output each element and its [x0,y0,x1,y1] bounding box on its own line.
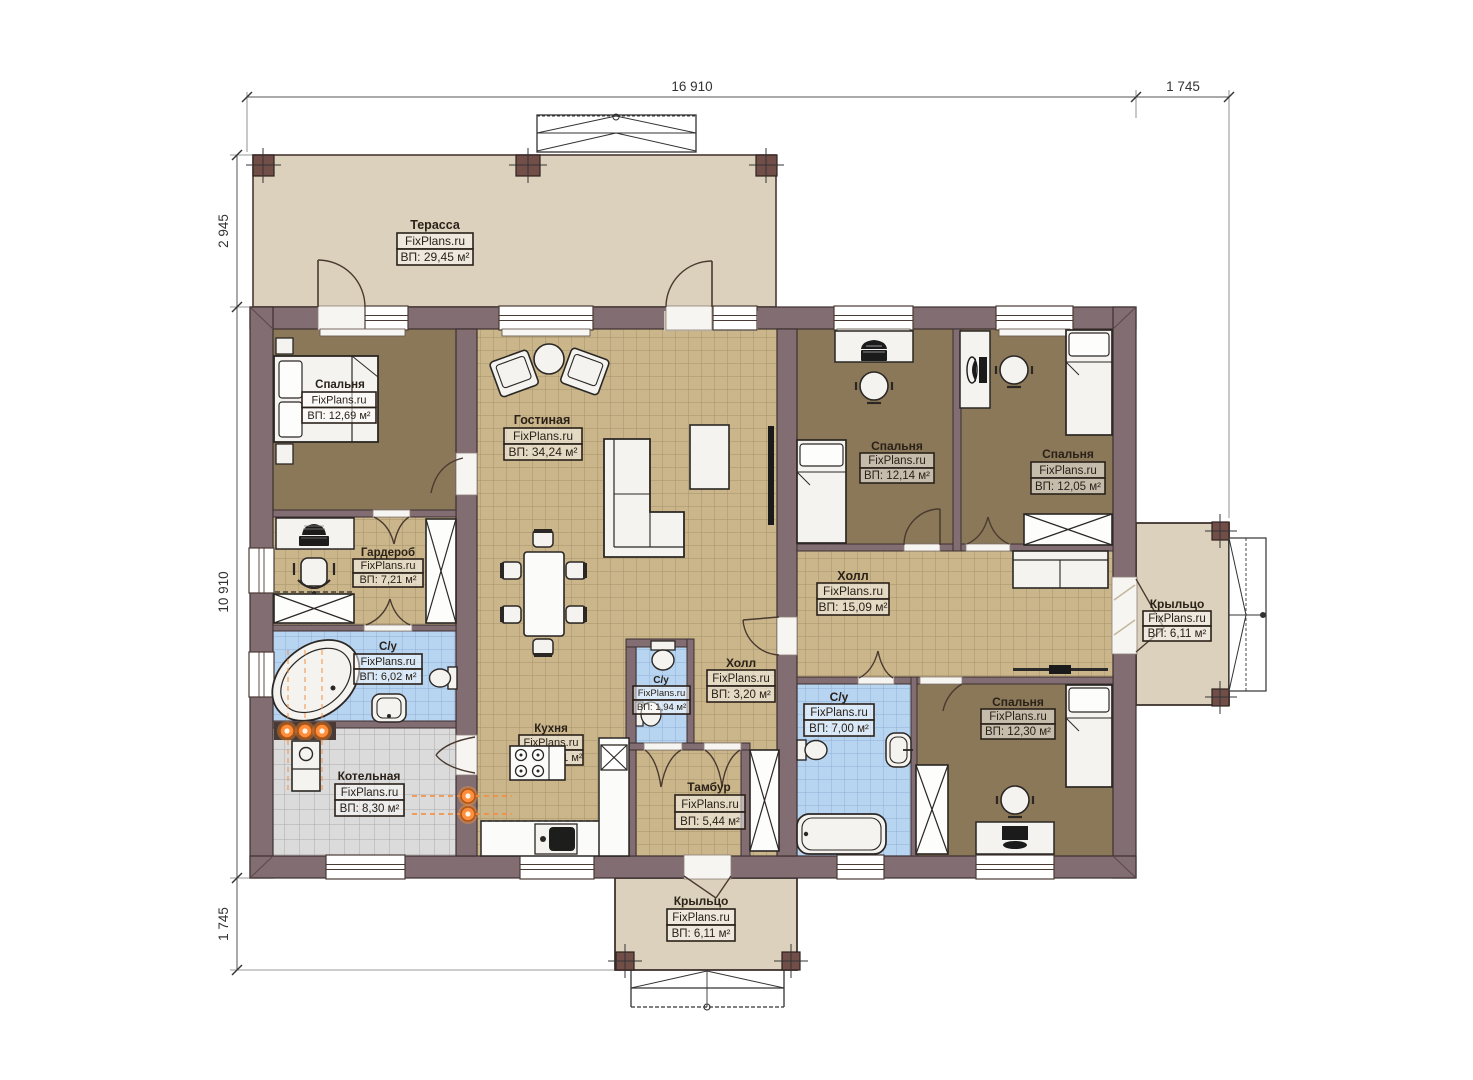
svg-text:FixPlans.ru: FixPlans.ru [360,560,415,572]
svg-text:Кухня: Кухня [534,723,568,735]
svg-text:FixPlans.ru: FixPlans.ru [360,656,415,668]
svg-text:ВП: 12,05 м²: ВП: 12,05 м² [1035,481,1101,493]
svg-text:ВП: 12,14 м²: ВП: 12,14 м² [864,470,930,482]
svg-text:FixPlans.ru: FixPlans.ru [712,673,770,685]
svg-text:ВП: 34,24 м²: ВП: 34,24 м² [509,445,578,459]
svg-text:FixPlans.ru: FixPlans.ru [672,912,730,924]
svg-text:FixPlans.ru: FixPlans.ru [513,429,573,443]
svg-text:С/у: С/у [653,675,669,686]
svg-text:Спальня: Спальня [315,379,365,391]
svg-text:ВП: 29,45 м²: ВП: 29,45 м² [401,250,470,264]
svg-text:FixPlans.ru: FixPlans.ru [311,395,366,407]
svg-text:FixPlans.ru: FixPlans.ru [1039,465,1097,477]
svg-text:Холл: Холл [837,569,868,583]
svg-text:2 945: 2 945 [216,214,231,248]
svg-text:С/у: С/у [830,690,849,704]
svg-text:ВП: 15,09 м²: ВП: 15,09 м² [819,600,888,614]
svg-text:ВП: 6,02 м²: ВП: 6,02 м² [359,671,416,683]
svg-text:ВП: 3,20 м²: ВП: 3,20 м² [711,689,771,701]
svg-text:Крыльцо: Крыльцо [674,894,729,908]
svg-text:FixPlans.ru: FixPlans.ru [341,787,399,799]
svg-text:С/у: С/у [379,641,398,653]
svg-text:16 910: 16 910 [671,79,712,94]
svg-text:Тамбур: Тамбур [687,780,731,794]
svg-text:ВП: 12,30 м²: ВП: 12,30 м² [985,726,1051,738]
svg-text:ВП: 8,30 м²: ВП: 8,30 м² [340,803,400,815]
svg-text:ВП: 6,11 м²: ВП: 6,11 м² [1148,628,1207,640]
svg-text:FixPlans.ru: FixPlans.ru [810,707,868,719]
svg-text:Котельная: Котельная [338,769,401,783]
svg-text:FixPlans.ru: FixPlans.ru [989,711,1047,723]
svg-text:Гардероб: Гардероб [361,547,415,559]
svg-text:1 745: 1 745 [216,907,231,941]
svg-text:ВП: 5,44 м²: ВП: 5,44 м² [680,816,740,828]
svg-text:FixPlans.ru: FixPlans.ru [868,455,926,467]
svg-text:10 910: 10 910 [216,571,231,612]
svg-text:FixPlans.ru: FixPlans.ru [1148,613,1206,625]
svg-text:ВП: 7,21 м²: ВП: 7,21 м² [359,574,416,586]
svg-text:Спальня: Спальня [871,439,923,453]
svg-text:FixPlans.ru: FixPlans.ru [823,584,883,598]
svg-text:ВП: 12,69 м²: ВП: 12,69 м² [307,410,371,422]
svg-text:ВП: 7,00 м²: ВП: 7,00 м² [809,723,869,735]
svg-text:Крыльцо: Крыльцо [1150,597,1205,611]
svg-text:Холл: Холл [726,656,756,670]
svg-text:Спальня: Спальня [992,695,1044,709]
svg-text:ВП: 1,94 м²: ВП: 1,94 м² [637,702,686,713]
svg-text:Спальня: Спальня [1042,447,1094,461]
svg-text:Терасса: Терасса [410,218,461,232]
svg-text:FixPlans.ru: FixPlans.ru [681,799,739,811]
svg-text:FixPlans.ru: FixPlans.ru [405,234,465,248]
svg-text:1 745: 1 745 [1166,79,1200,94]
svg-text:FixPlans.ru: FixPlans.ru [638,688,686,699]
svg-text:Гостиная: Гостиная [514,413,571,427]
svg-text:ВП: 6,11 м²: ВП: 6,11 м² [672,928,731,940]
